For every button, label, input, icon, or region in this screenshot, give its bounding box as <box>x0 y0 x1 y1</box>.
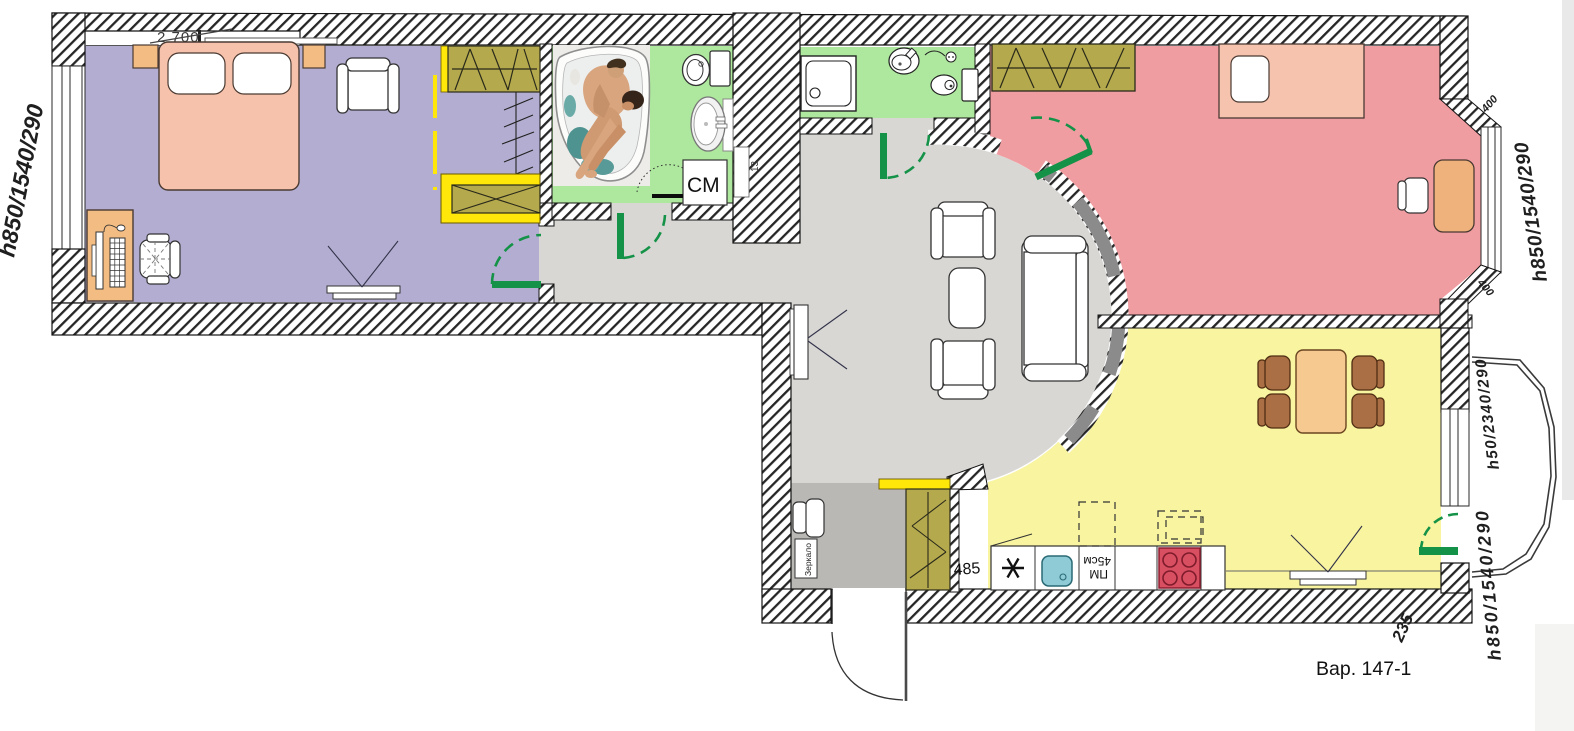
svg-text:13: 13 <box>750 160 761 172</box>
svg-text:Зеркало: Зеркало <box>803 543 813 576</box>
svg-text:Вар. 147-1: Вар. 147-1 <box>1316 658 1411 680</box>
svg-text:CM: CM <box>687 174 720 197</box>
svg-text:ПМ: ПМ <box>1089 567 1108 581</box>
svg-text:45см: 45см <box>1083 554 1111 568</box>
svg-text:485: 485 <box>953 560 981 579</box>
